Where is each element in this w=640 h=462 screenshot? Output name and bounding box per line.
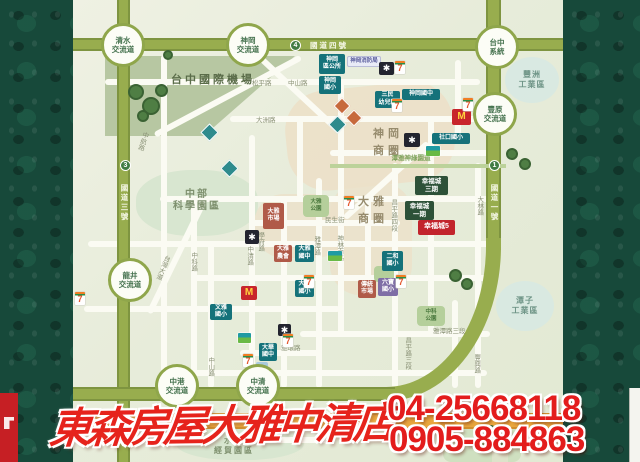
seven-eleven-icon: 7 (396, 275, 406, 288)
road-label-changping-3: 昌平路三段 (403, 330, 411, 376)
park-label-daya: 大雅 公園 (303, 195, 329, 217)
agency-logo-strip (0, 393, 18, 462)
freeway4-shield: 4 (290, 40, 301, 51)
tree (519, 158, 531, 170)
familymart-icon (426, 146, 440, 156)
zone-fengzhou-industrial: 豐洲 工業區 (505, 57, 559, 103)
interchange-fengyuan: 豐原 交流道 (473, 92, 517, 136)
road-label-dalin: 大林路 (475, 190, 483, 222)
road-label-zhongshan-n: 中山路 (288, 80, 308, 88)
phone-number-2: 0905-884863 (389, 420, 584, 460)
freeway1-label: 國道一號 (489, 174, 500, 232)
freeway3-label: 國道三號 (119, 174, 130, 232)
familymart-icon (238, 333, 251, 343)
poi-shengang-office: 神岡 區公所 (319, 54, 345, 74)
poi-liubao-elementary: 六寶 國小 (378, 278, 398, 296)
poi-shengang-elementary: 神岡 國小 (319, 76, 341, 94)
freeway4-label: 國道四號 (304, 41, 354, 50)
poi-farmers-association: 大雅 農會 (274, 245, 292, 262)
road-label-shenlin-s: 神林南路 (335, 228, 343, 268)
road (297, 118, 303, 198)
road-label-changping-4: 昌平路四段 (389, 192, 397, 238)
mcdonalds-icon: M (452, 109, 471, 125)
pxmart-icon: ✱ (245, 230, 259, 244)
tree (449, 269, 462, 282)
seven-eleven-icon: 7 (463, 98, 473, 111)
tree (137, 110, 149, 122)
seven-eleven-icon: 7 (392, 99, 402, 112)
seven-eleven-icon: 7 (344, 196, 354, 209)
pxmart-icon: ✱ (379, 62, 394, 75)
mcdonalds-icon: M (241, 286, 257, 300)
interchange-qingshui: 清水 交流道 (101, 23, 145, 67)
road-label-zhongke: 中科路 (189, 246, 197, 278)
area-label-science-park: 中部 科學園區 (154, 189, 240, 213)
road-label-songping: 松平路 (252, 80, 272, 88)
right-edge-card (629, 388, 640, 462)
seven-eleven-icon: 7 (304, 275, 314, 288)
tree (163, 50, 173, 60)
poi-xingfucheng-5: 幸福城5 (418, 220, 455, 235)
pxmart-icon: ✱ (404, 133, 420, 147)
road (161, 55, 167, 388)
poi-xingfucheng-3: 幸福城 三期 (415, 176, 448, 195)
road-label-minsheng: 民生街 (325, 217, 345, 225)
poi-traditional-market: 傳統 市場 (358, 280, 376, 298)
poi-daya-junior-high: 大雅 國中 (295, 245, 314, 262)
label-bikeway: 潭雅神綠園道 (378, 155, 444, 163)
road-label-yatan-3: 雅潭路三段 (433, 328, 466, 336)
road-label-zhongshan-s: 中山路 (206, 352, 214, 382)
road-label-fengxing: 豐興路 (472, 348, 480, 380)
seven-eleven-icon: 7 (283, 334, 293, 347)
poi-shekou-elementary: 社口國小 (432, 133, 470, 144)
store-name: 東森房屋大雅中清店 (47, 389, 394, 456)
seven-eleven-icon: 7 (75, 292, 85, 305)
poi-daya-market: 大雅 市場 (263, 203, 284, 229)
freeway3-shield: 3 (120, 160, 131, 171)
tree (128, 84, 144, 100)
poi-dahua-junior-high: 大華 國中 (259, 343, 277, 361)
tree (461, 278, 473, 290)
interchange-taichung-system: 台中 系統 (475, 25, 519, 69)
tree (506, 148, 518, 160)
interchange-shengang: 神岡 交流道 (226, 23, 270, 67)
interchange-longjing: 龍井 交流道 (108, 258, 152, 302)
freeway1-shield: 1 (489, 160, 500, 171)
zone-tanzi-industrial: 潭子 工業區 (496, 281, 554, 331)
road-label-dazhou: 大洲路 (256, 117, 276, 125)
poi-xingfucheng-1: 幸福城 一期 (405, 201, 434, 220)
poi-wenya-elementary: 文雅 國小 (210, 304, 232, 320)
familymart-icon (328, 251, 342, 261)
seven-eleven-icon: 7 (395, 61, 405, 74)
map-poster: 清水 交流道神岡 交流道台中 系統豐原 交流道龍井 交流道中港 交流道中清 交流… (0, 0, 640, 462)
park-label-zhongke: 中科 公園 (417, 306, 445, 326)
poi-erhe-elementary: 二和 國小 (382, 251, 403, 271)
bikeway-line (330, 164, 506, 168)
road-label-zhongqing: 中清路 (245, 240, 253, 272)
poi-fire-department: 神岡消防局 (347, 56, 381, 67)
poi-shengang-junior-high: 神岡國中 (402, 89, 440, 100)
